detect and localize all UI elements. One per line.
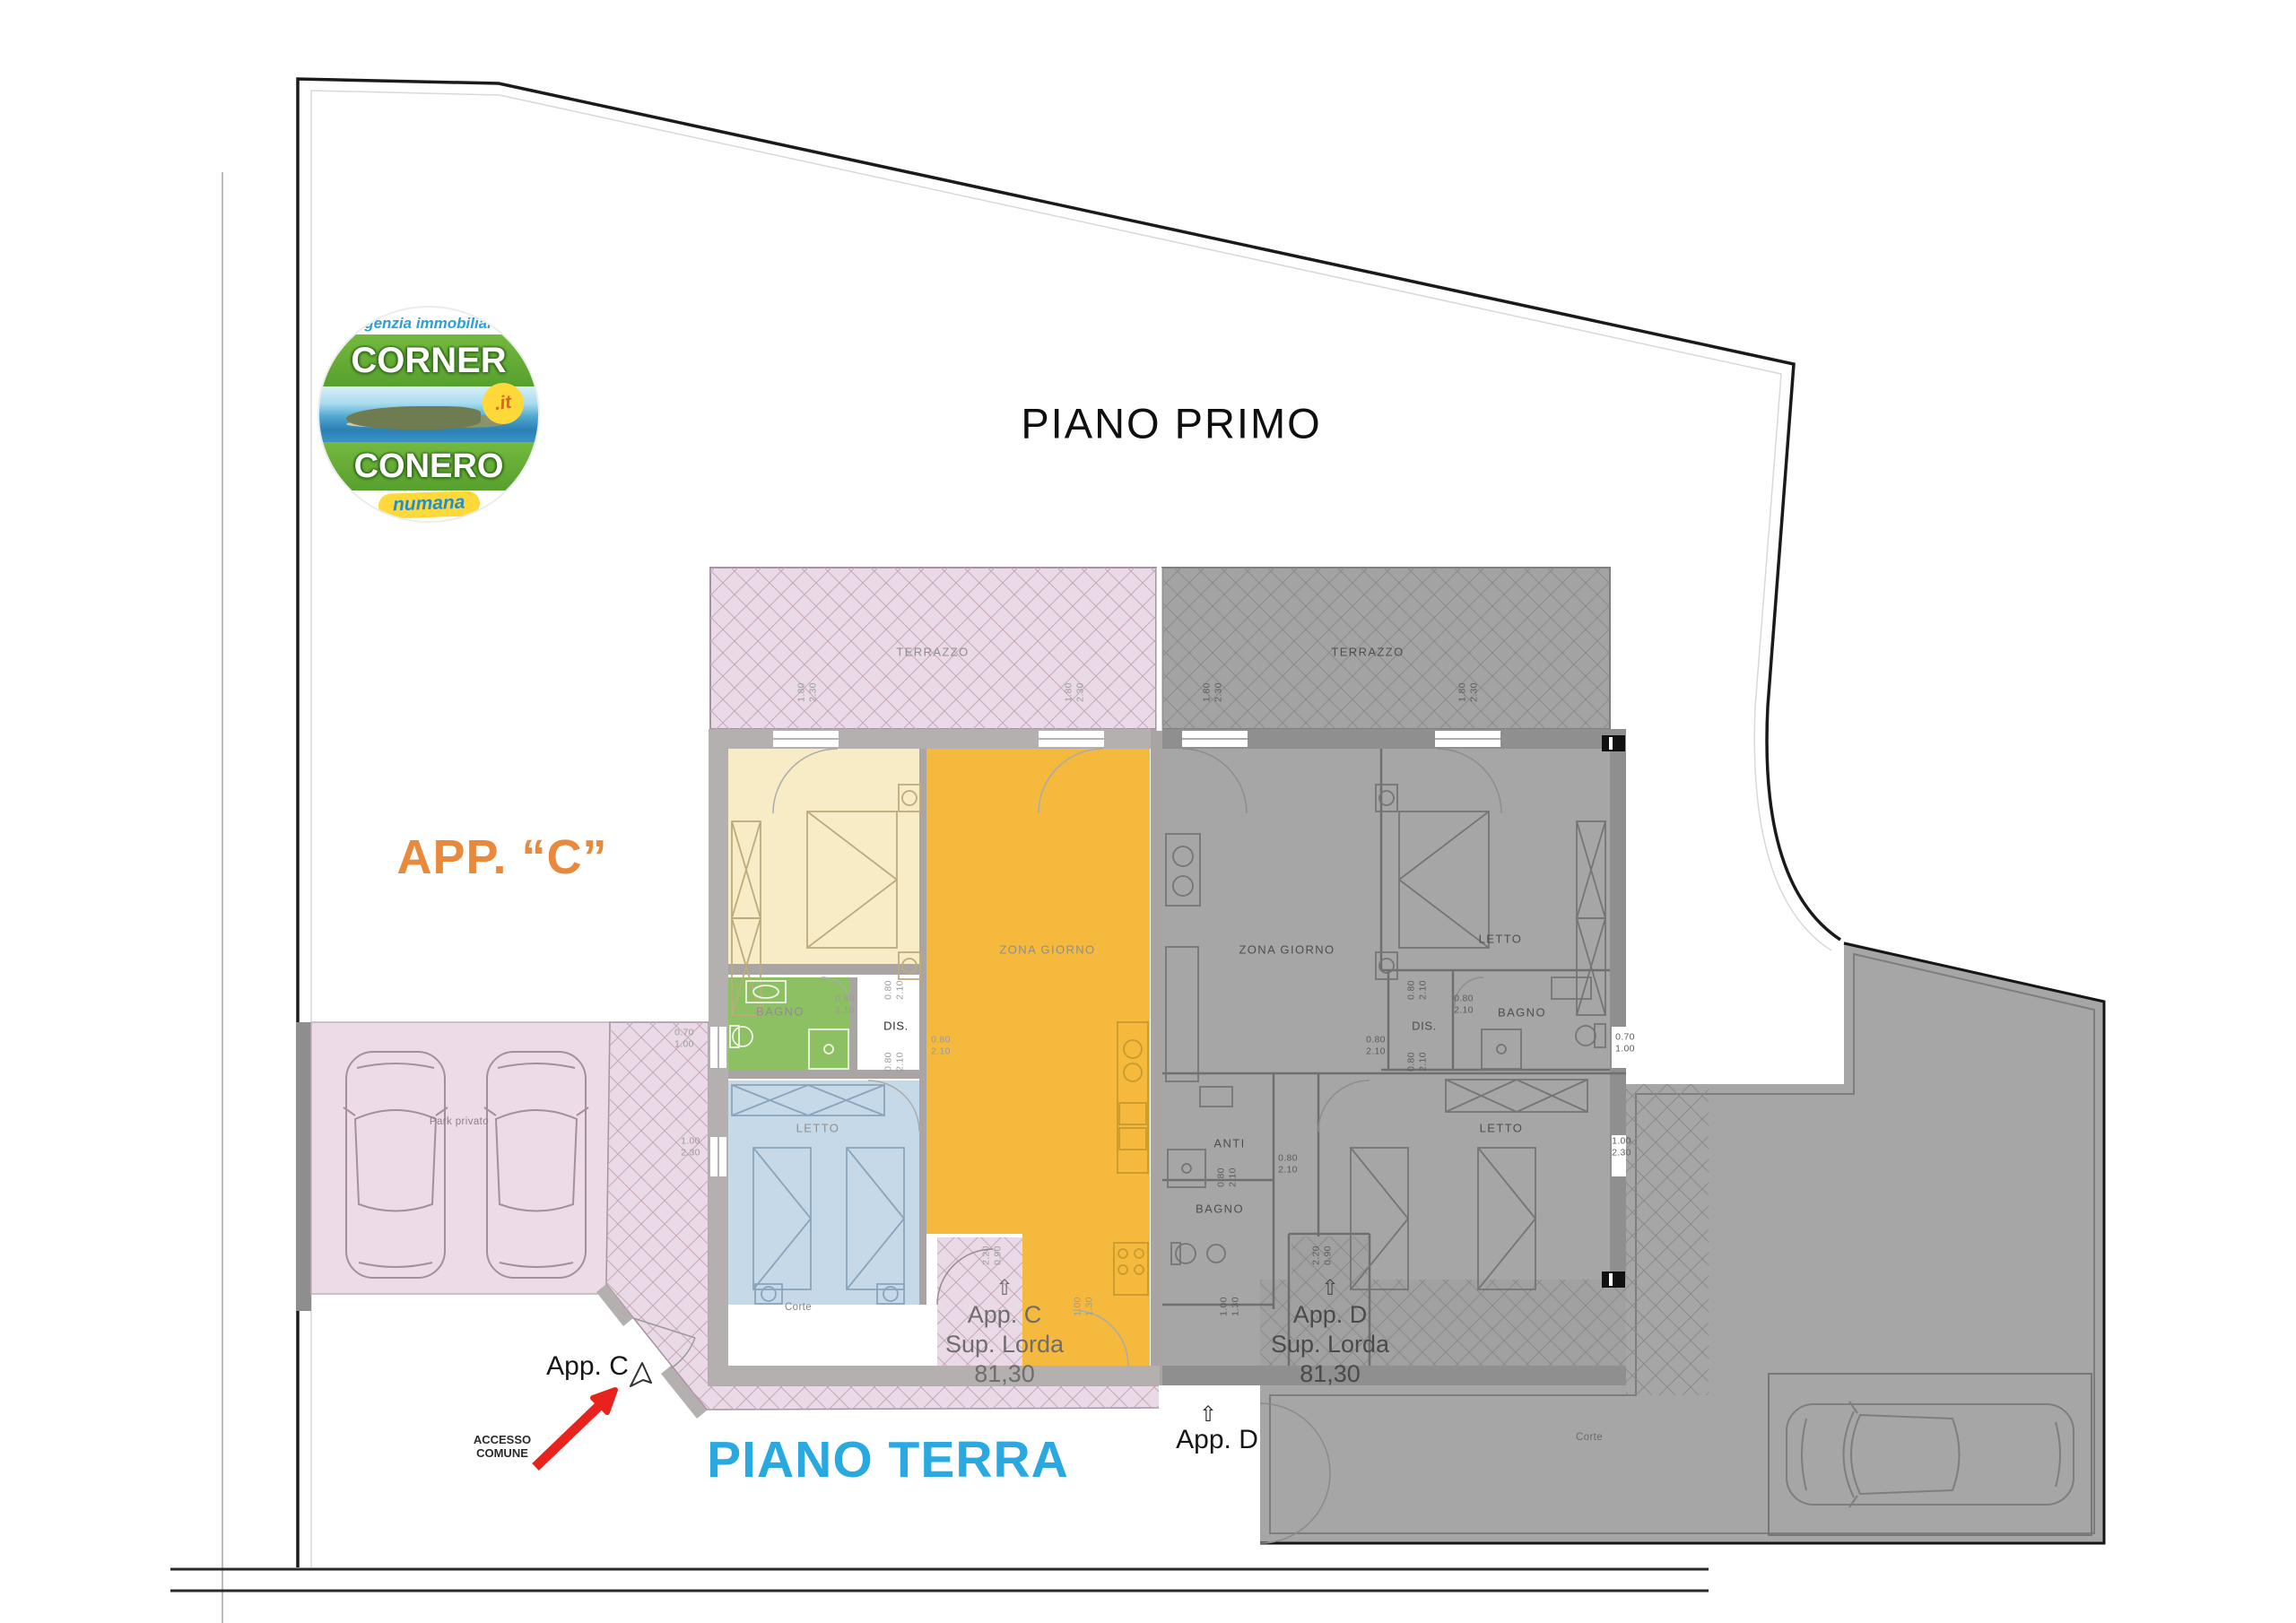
app-c-area-name: App. C [968, 1301, 1042, 1328]
logo-band-top: CORNER [319, 334, 538, 386]
dimension-label: 0.80 2.10 [835, 993, 855, 1015]
ground-floor-title: PIANO TERRA [707, 1430, 1069, 1489]
room-label-dis-d: DIS. [1412, 1020, 1437, 1033]
room-label-bagno-d-upper: BAGNO [1498, 1006, 1546, 1020]
app-d-area-label: Sup. Lorda [1271, 1331, 1389, 1358]
dimension-label: 1.00 1.30 [1072, 1297, 1094, 1316]
room-label-terrazzo-d: TERRAZZO [1331, 646, 1404, 659]
dimension-label: 1.80 2.30 [1457, 682, 1479, 702]
dimension-label: 2.20 0.90 [1310, 1245, 1333, 1265]
dimension-label: 1.00 1.30 [1218, 1297, 1240, 1316]
room-label-letto-c: LETTO [796, 1122, 840, 1135]
app-c-area-label: Sup. Lorda [945, 1331, 1064, 1358]
logo-brand-bottom: CONERO [319, 442, 538, 490]
dimension-label: 1.00 2.30 [681, 1135, 700, 1158]
dimension-label: 1.80 2.30 [1063, 682, 1085, 702]
access-arrow [535, 1390, 615, 1467]
room-label-bagno-d-lower: BAGNO [1196, 1202, 1244, 1216]
up-arrow-icon: ⇧ [1271, 1277, 1389, 1298]
private-parking-area [296, 1022, 610, 1311]
room-label-dis-c: DIS. [883, 1020, 909, 1033]
logo-city: numana [392, 492, 465, 516]
dimension-label: 0.80 2.10 [1366, 1034, 1386, 1056]
room-label-corte-c: Corte [785, 1302, 812, 1313]
app-d-entry-label: App. D [1176, 1425, 1258, 1455]
dimension-label: 0.80 2.10 [1405, 980, 1428, 1000]
room-label-anti-d: ANTI [1213, 1137, 1245, 1150]
dimension-label: 0.70 1.00 [1615, 1031, 1635, 1054]
floor-plan-drawing [0, 0, 2296, 1623]
app-d-area-value: 81,30 [1300, 1360, 1361, 1387]
first-floor-title: PIANO PRIMO [1021, 399, 1321, 448]
room-label-corte-d: Corte [1576, 1432, 1603, 1443]
room-label-zona-giorno-c: ZONA GIORNO [999, 943, 1095, 957]
app-c-entry-label: App. C [546, 1351, 629, 1382]
floor-plan-page: PIANO PRIMO APP. “C” PIANO TERRA TERRAZZ… [0, 0, 2296, 1623]
logo-band-bottom: CONERO [319, 442, 538, 490]
dimension-label: 0.70 1.00 [674, 1027, 694, 1049]
room-label-bagno-c: BAGNO [756, 1005, 804, 1019]
room-label-park-privato: Park privato [430, 1116, 489, 1127]
dimension-label: 2.20 0.90 [980, 1245, 1003, 1265]
dimension-label: 0.80 2.10 [1454, 993, 1474, 1015]
dimension-label: 0.80 2.10 [931, 1034, 951, 1056]
app-c-area-block: ⇧ App. C Sup. Lorda 81,30 [945, 1277, 1064, 1389]
dimension-label: 0.80 2.10 [883, 1052, 905, 1072]
logo-city-band: numana [319, 492, 538, 517]
logo-brand-top: CORNER [319, 334, 538, 386]
dimension-label: 0.80 2.10 [1215, 1167, 1238, 1187]
conero-cliff-image [346, 406, 481, 430]
dimension-label: 1.80 2.30 [796, 682, 818, 702]
apartment-c-zone-label: APP. “C” [396, 829, 607, 885]
app-c-area-value: 81,30 [974, 1360, 1035, 1387]
dimension-label: 0.80 2.10 [1278, 1152, 1298, 1175]
room-label-letto-d-lower: LETTO [1480, 1122, 1524, 1135]
dimension-label: 0.80 2.10 [1405, 1052, 1428, 1072]
agency-logo: agenzia immobiliare CORNER CONERO numana… [319, 308, 538, 521]
cursor-icon [631, 1363, 651, 1386]
app-d-area-name: App. D [1293, 1301, 1368, 1328]
logo-tagline: agenzia immobiliare [319, 315, 538, 333]
room-label-letto-d-upper: LETTO [1479, 933, 1523, 946]
room-label-zona-giorno-d: ZONA GIORNO [1239, 943, 1335, 957]
dimension-label: 1.00 2.30 [1612, 1135, 1631, 1158]
dimension-label: 0.80 2.10 [883, 980, 905, 1000]
up-arrow-icon: ⇧ [945, 1277, 1064, 1298]
accesso-comune-label: ACCESSO COMUNE [474, 1434, 531, 1461]
up-arrow-icon: ⇧ [1199, 1402, 1217, 1427]
dimension-label: 1.80 2.30 [1201, 682, 1223, 702]
app-d-area-block: ⇧ App. D Sup. Lorda 81,30 [1271, 1277, 1389, 1389]
room-label-terrazzo-c: TERRAZZO [896, 646, 969, 659]
